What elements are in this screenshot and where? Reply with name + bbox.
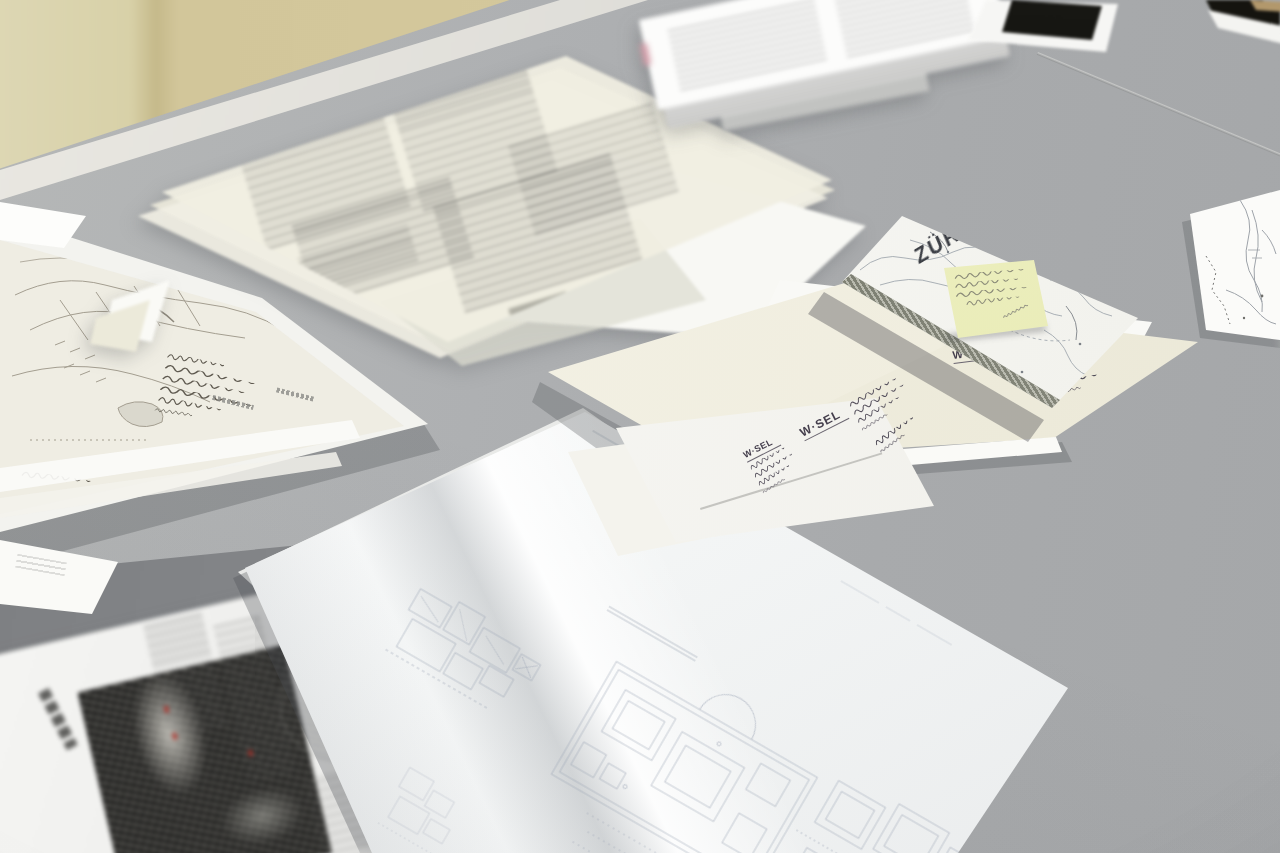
envelope-group: W·SEL W·SEL: [0, 0, 1280, 853]
desk-photo: W·SEL W·SEL: [0, 0, 1280, 853]
envelope: [0, 0, 1280, 853]
sticky-note-date: [1002, 303, 1031, 321]
sticky-note-handwriting: [954, 269, 1028, 308]
